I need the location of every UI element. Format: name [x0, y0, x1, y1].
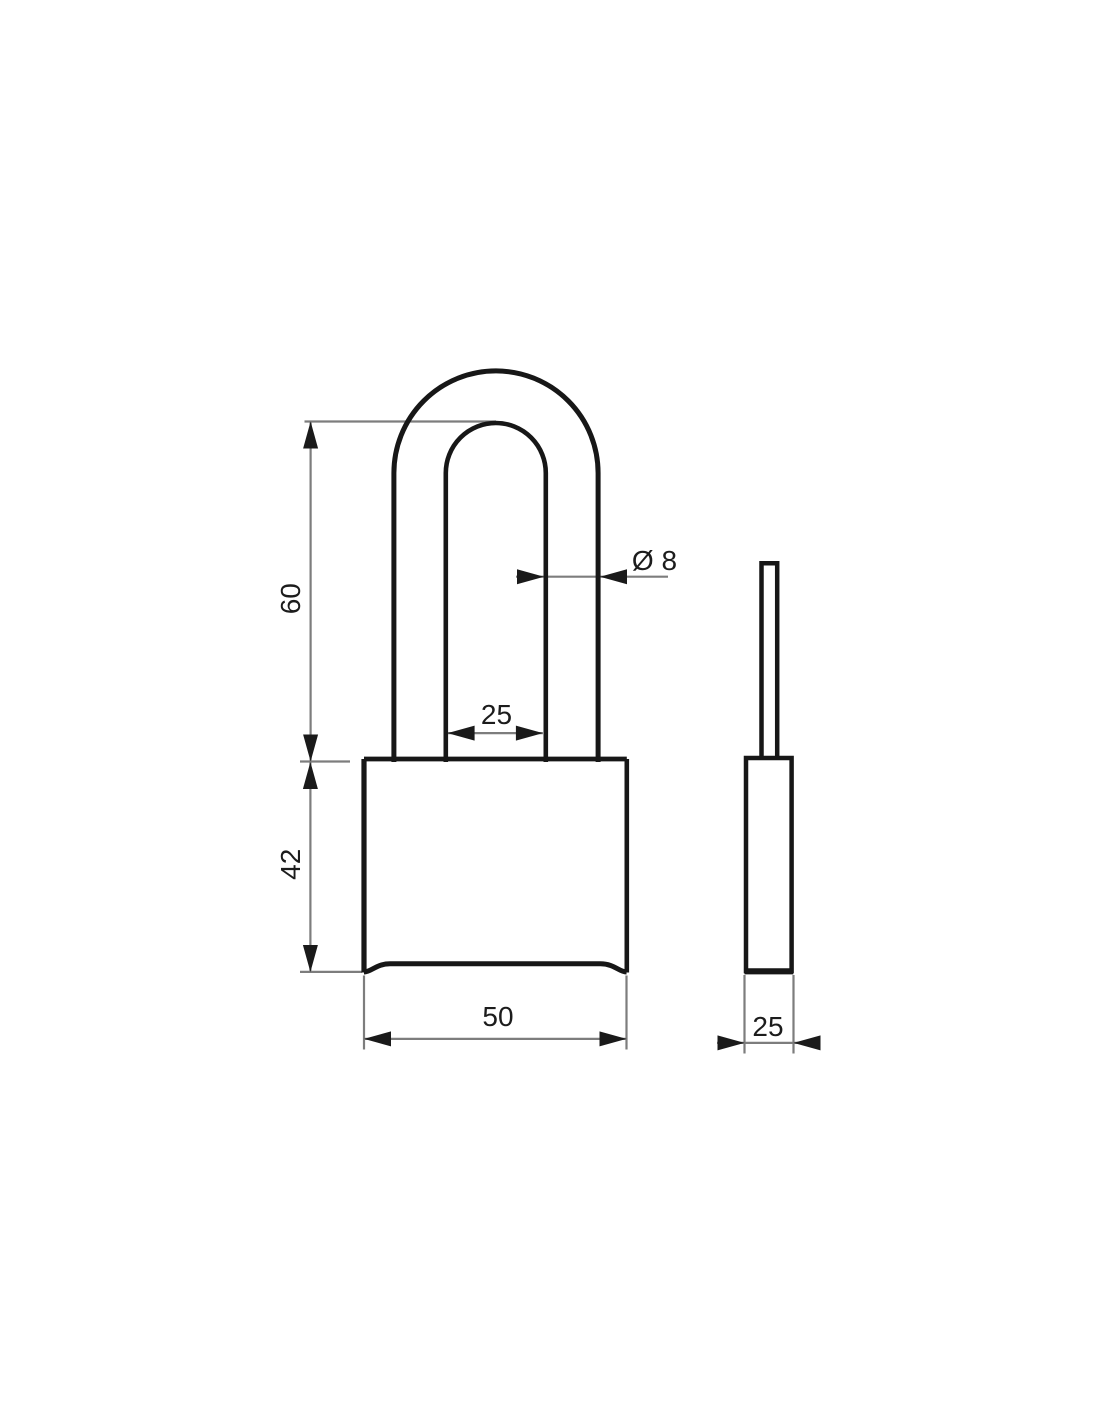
- svg-text:60: 60: [275, 583, 306, 614]
- svg-text:42: 42: [275, 849, 306, 880]
- svg-text:25: 25: [752, 1011, 783, 1042]
- svg-text:50: 50: [482, 1001, 513, 1032]
- svg-text:25: 25: [481, 699, 512, 730]
- svg-text:Ø 8: Ø 8: [632, 545, 677, 576]
